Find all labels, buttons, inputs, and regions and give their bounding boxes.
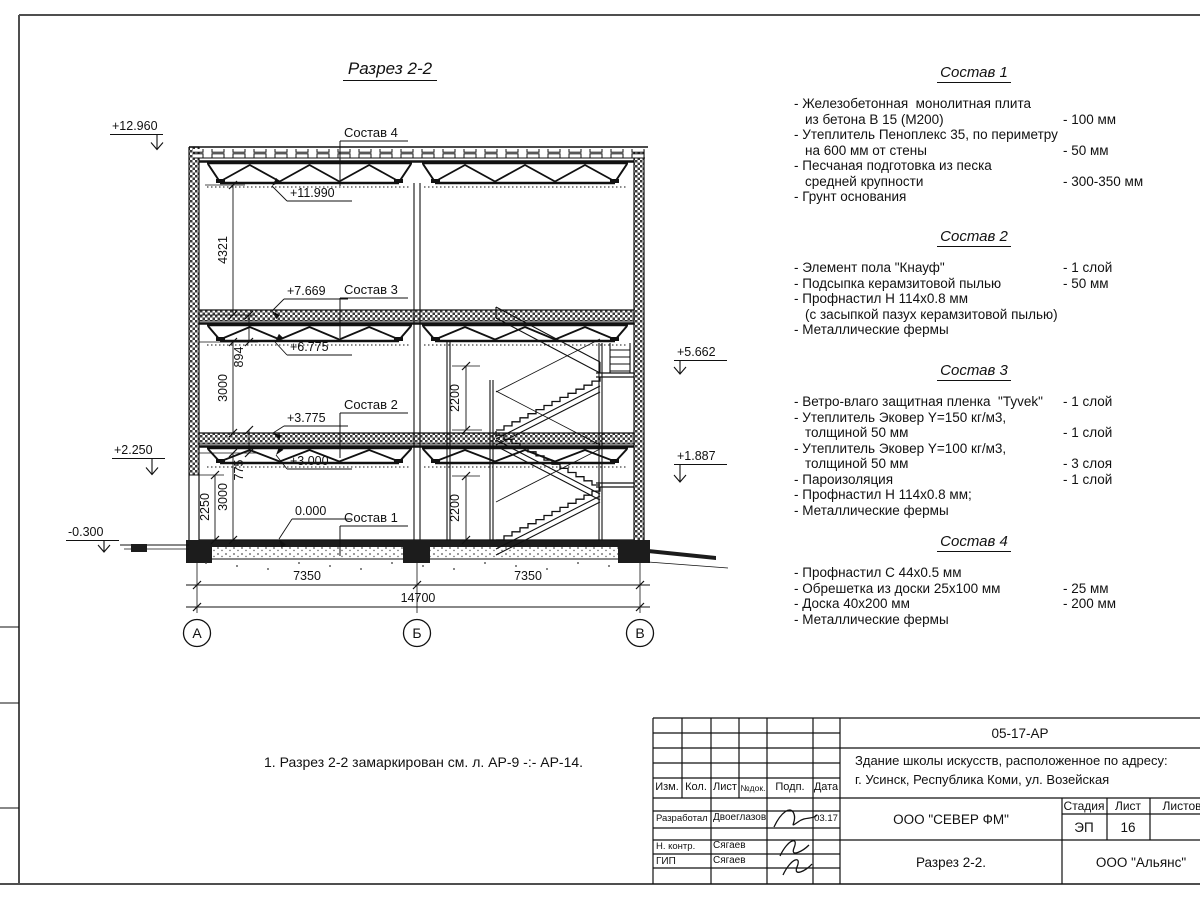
tb-project-name: Здание школы искусств, расположенное по … (855, 753, 1168, 768)
tb-col-list: Лист (713, 781, 737, 793)
tb-project-name: г. Усинск, Республика Коми, ул. Возейска… (855, 772, 1109, 787)
list-item: - Металлические фермы (788, 503, 1160, 519)
dimension-label: 7350 (514, 569, 542, 583)
axis-label: В (635, 625, 644, 641)
elevation-label: +5.662 (677, 345, 716, 359)
callout-leaders (340, 141, 408, 556)
list-item: - Металлические фермы (788, 612, 1160, 628)
tb-organization: ООО "СЕВЕР ФМ" (893, 812, 1009, 827)
list-item: - Песчаная подготовка из песка средней к… (788, 158, 1160, 189)
tb-sheet-number: 16 (1120, 820, 1135, 835)
tb-contractor: ООО "Альянс" (1096, 855, 1186, 870)
tb-sheet-label: Лист (1115, 799, 1141, 813)
composition-4: Состав 4 - Профнастил С 44х0.5 мм - Обре… (788, 533, 1160, 627)
tb-col-data: Дата (814, 781, 838, 793)
list-item: - Утеплитель Эковер Y=100 кг/м3, толщино… (788, 441, 1160, 472)
elevation-marks (66, 135, 727, 553)
composition-1: Состав 1 - Железобетонная монолитная пли… (788, 64, 1160, 205)
composition-2: Состав 2 - Элемент пола "Кнауф" - 1 слой… (788, 228, 1160, 338)
dimension-label: 894 (232, 347, 246, 368)
list-item: - Металлические фермы (788, 322, 1160, 338)
tb-col-ndok: №док. (741, 783, 766, 793)
elevation-label: +11.990 (290, 186, 335, 200)
axis-label: А (192, 625, 202, 641)
elevation-label: +7.669 (287, 284, 326, 298)
floor-slabs (199, 310, 634, 447)
list-item: - Грунт основания (788, 189, 1160, 205)
tb-stage-label: Стадия (1064, 799, 1105, 813)
list-item: - Профнастил С 44х0.5 мм (788, 565, 1160, 581)
tb-col-izm: Изм. (655, 781, 679, 793)
elevation-label: +2.250 (114, 443, 153, 457)
elevation-label: +1.887 (677, 449, 716, 463)
tb-role: Разработал (656, 813, 708, 824)
dimension-label: 2250 (198, 493, 212, 521)
tb-doc-number: 05-17-АР (991, 726, 1048, 741)
tb-stage-value: ЭП (1074, 820, 1093, 835)
elevation-label: -0.300 (68, 525, 103, 539)
callout-label: Состав 2 (344, 397, 398, 412)
list-item: - Утеплитель Эковер Y=150 кг/м3, толщино… (788, 410, 1160, 441)
composition-3: Состав 3 - Ветро-влаго защитная пленка "… (788, 362, 1160, 518)
list-item: - Ветро-влаго защитная пленка "Tyvek" - … (788, 394, 1160, 410)
callout-label: Состав 3 (344, 282, 398, 297)
tb-name: Сягаев (713, 855, 746, 866)
callout-label: Состав 1 (344, 510, 398, 525)
drawing-sheet: +12.960 +2.250 -0.300 +5.662 +1.887 +11.… (0, 0, 1200, 900)
tb-role: Н. контр. (656, 841, 695, 852)
dimension-label: 4321 (216, 236, 230, 264)
composition-title: Состав 3 (788, 362, 1160, 379)
list-item: - Железобетонная монолитная плита из бет… (788, 96, 1160, 127)
tb-col-podp: Подп. (775, 781, 804, 793)
tb-sheets-label: Листов (1163, 799, 1200, 813)
tb-date: 03.17 (814, 813, 838, 824)
elevation-label: 0.000 (295, 504, 326, 518)
composition-title: Состав 4 (788, 533, 1160, 550)
note-text: 1. Разрез 2-2 замаркирован см. л. АР-9 -… (264, 754, 583, 770)
list-item: - Подсыпка керамзитовой пылью - 50 мм (788, 276, 1160, 292)
list-item: - Утеплитель Пеноплекс 35, по периметру … (788, 127, 1160, 158)
axis-label: Б (412, 625, 421, 641)
drawing-title: Разрез 2-2 (310, 59, 470, 79)
callout-label: Состав 4 (344, 125, 398, 140)
list-item: - Элемент пола "Кнауф" - 1 слой (788, 260, 1160, 276)
list-item: - Обрешетка из доски 25х100 мм - 25 мм (788, 581, 1160, 597)
tb-sheet-title: Разрез 2-2. (916, 855, 986, 870)
elevation-label: +3.775 (287, 411, 326, 425)
tb-name: Сягаев (713, 840, 746, 851)
elevation-label: +12.960 (112, 119, 158, 133)
list-item: - Профнастил Н 114х0.8 мм; (788, 487, 1160, 503)
list-item: - Пароизоляция - 1 слой (788, 472, 1160, 488)
composition-title: Состав 1 (788, 64, 1160, 81)
list-item: - Доска 40х200 мм - 200 мм (788, 596, 1160, 612)
tb-col-kol: Кол. (685, 781, 707, 793)
roof-assembly (189, 147, 648, 162)
list-item: - Профнастил Н 114х0.8 мм (с засыпкой па… (788, 291, 1160, 322)
drawing-title-text: Разрез 2-2 (343, 59, 437, 81)
dimension-label: 14700 (401, 591, 436, 605)
dimension-label: 7350 (293, 569, 321, 583)
ground-floor (120, 540, 728, 568)
dimension-label: 3000 (216, 374, 230, 402)
signature-scribbles (774, 810, 817, 875)
tb-role: ГИП (656, 856, 676, 867)
dimension-label: 3000 (216, 483, 230, 511)
tb-name: Двоеглазов (713, 812, 766, 823)
composition-title: Состав 2 (788, 228, 1160, 245)
